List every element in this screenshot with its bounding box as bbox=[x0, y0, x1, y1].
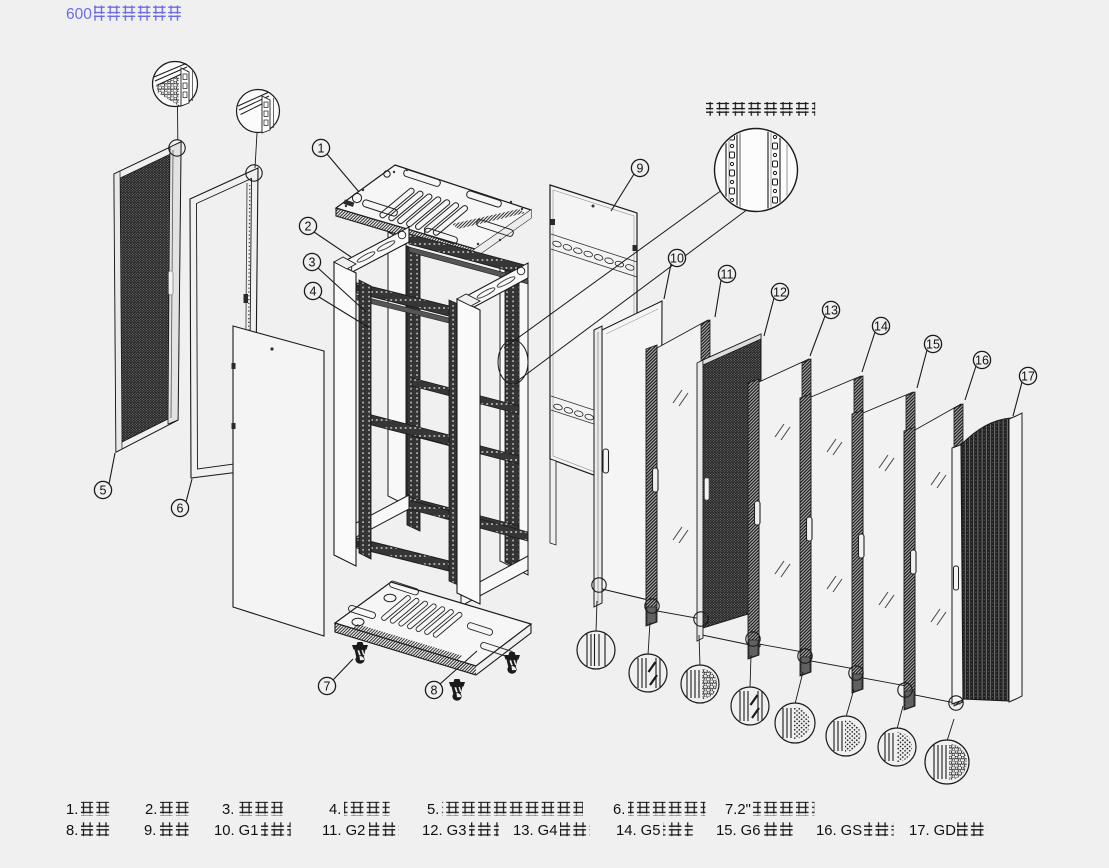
svg-text:11. G2: 11. G2 bbox=[322, 823, 365, 839]
svg-text:8.: 8. bbox=[66, 823, 78, 839]
svg-text:5: 5 bbox=[100, 483, 107, 497]
svg-text:6: 6 bbox=[177, 501, 184, 515]
svg-text:1: 1 bbox=[318, 141, 325, 155]
svg-text:16. GS: 16. GS bbox=[816, 823, 862, 839]
svg-text:12: 12 bbox=[773, 285, 787, 299]
svg-text:2: 2 bbox=[305, 219, 312, 233]
svg-text:10: 10 bbox=[670, 251, 684, 265]
svg-text:14. G5: 14. G5 bbox=[616, 823, 660, 839]
svg-text:7: 7 bbox=[324, 679, 331, 693]
svg-text:16: 16 bbox=[975, 353, 989, 367]
svg-text:4.: 4. bbox=[329, 802, 341, 818]
svg-text:6.: 6. bbox=[613, 802, 625, 818]
svg-text:4: 4 bbox=[310, 284, 317, 298]
svg-text:3.: 3. bbox=[222, 802, 234, 818]
svg-text:2.: 2. bbox=[145, 802, 157, 818]
svg-text:12. G3: 12. G3 bbox=[422, 823, 466, 839]
svg-text:11: 11 bbox=[721, 267, 734, 281]
svg-text:7.2": 7.2" bbox=[725, 802, 751, 818]
svg-text:17: 17 bbox=[1021, 369, 1035, 383]
svg-text:3: 3 bbox=[309, 255, 316, 269]
svg-text:5.: 5. bbox=[427, 802, 439, 818]
svg-text:10. G1: 10. G1 bbox=[214, 823, 258, 839]
svg-text:15. G6: 15. G6 bbox=[716, 823, 760, 839]
svg-text:9: 9 bbox=[637, 161, 644, 175]
svg-text:600: 600 bbox=[66, 6, 92, 23]
svg-text:14: 14 bbox=[874, 319, 888, 333]
svg-text:8: 8 bbox=[431, 683, 438, 697]
svg-text:1.: 1. bbox=[66, 802, 78, 818]
svg-text:17. GD: 17. GD bbox=[909, 823, 956, 839]
svg-text:13: 13 bbox=[824, 303, 838, 317]
svg-text:15: 15 bbox=[926, 337, 940, 351]
svg-text:13. G4: 13. G4 bbox=[513, 823, 557, 839]
svg-text:9.: 9. bbox=[144, 823, 156, 839]
